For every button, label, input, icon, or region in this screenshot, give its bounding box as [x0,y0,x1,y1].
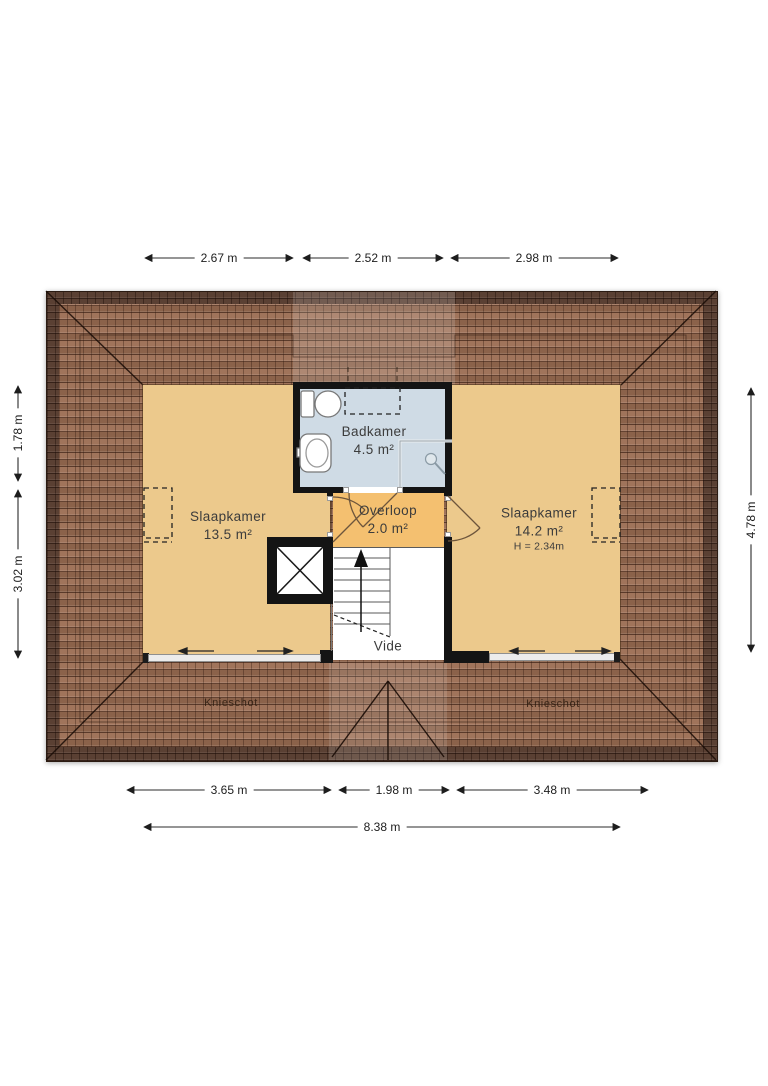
knieschot-sliding-rail-left [148,654,321,662]
bathroom-wall-top [293,382,452,389]
knieschot-label-left: Knieschot [204,697,258,709]
bathroom-wall-right [445,382,452,493]
bedroom-right-label: Slaapkamer 14.2 m² H = 2.34m [501,504,577,553]
room-area: 14.2 m² [501,522,577,540]
room-name: Slaapkamer [190,508,266,526]
overloop-wall-left-stub [327,487,333,496]
room-area: 13.5 m² [190,526,266,544]
dormer-top-overlay [293,292,455,385]
dim-bottom-total: 8.38 m [358,820,407,834]
room-name: Slaapkamer [501,504,577,522]
knieschot-sliding-rail-right [489,653,617,661]
dim-left-1: 1.78 m [11,409,25,458]
rail-end-cap [614,652,620,662]
door-jamb [445,496,451,501]
overloop-wall-right-stub [444,487,452,496]
stairwell-wall-right [444,537,452,663]
room-name: Badkamer [342,423,407,441]
dim-bottom-3: 3.48 m [528,783,577,797]
shaft-box-inner [277,547,323,594]
dim-top-1: 2.67 m [195,251,244,265]
dormer-bottom-overlay [329,663,447,760]
dim-left-2: 3.02 m [11,550,25,599]
dim-top-3: 2.98 m [510,251,559,265]
vide-label: Vide [374,639,402,654]
overloop-label: Overloop 2.0 m² [359,502,417,538]
room-height-note: H = 2.34m [501,540,577,554]
dim-right-1: 4.78 m [744,496,758,545]
wall-stub [444,651,489,663]
dim-bottom-1: 3.65 m [205,783,254,797]
room-name: Overloop [359,502,417,520]
bathroom-label: Badkamer 4.5 m² [342,423,407,459]
door-jamb [327,496,333,501]
wall-stub [320,650,333,663]
floorplan-canvas: Slaapkamer 13.5 m² Slaapkamer 14.2 m² H … [0,0,768,1086]
room-area: 4.5 m² [342,441,407,459]
dim-top-2: 2.52 m [349,251,398,265]
bathroom-wall-left [293,382,300,493]
room-area: 2.0 m² [359,520,417,538]
dim-bottom-2: 1.98 m [370,783,419,797]
bedroom-left-label: Slaapkamer 13.5 m² [190,508,266,544]
knieschot-label-right: Knieschot [526,698,580,710]
